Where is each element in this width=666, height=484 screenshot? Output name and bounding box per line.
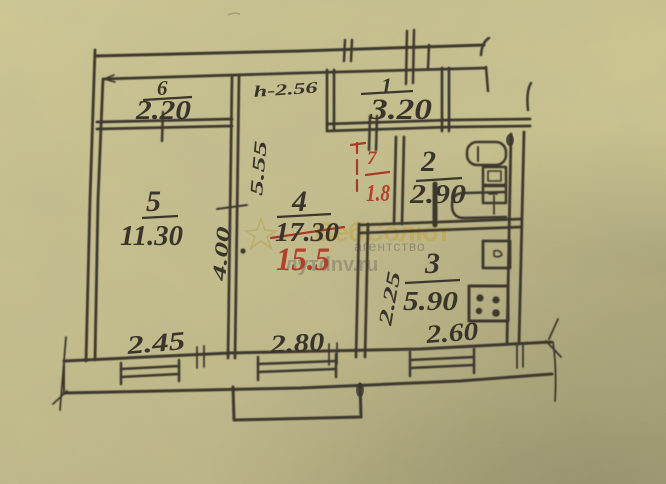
svg-text:2.90: 2.90 [409,179,467,209]
svg-text:15.5: 15.5 [276,242,330,278]
svg-text:2: 2 [420,145,436,178]
svg-text:4: 4 [291,185,307,218]
svg-text:2.45: 2.45 [125,326,187,360]
svg-text:1.8: 1.8 [366,181,390,207]
svg-text:5: 5 [146,185,161,218]
svg-text:5.90: 5.90 [403,286,459,316]
svg-text:7: 7 [367,148,378,169]
svg-text:2.80: 2.80 [269,327,326,359]
svg-text:3.20: 3.20 [369,93,432,126]
svg-text:2.60: 2.60 [424,316,479,349]
svg-text:11.30: 11.30 [120,221,183,252]
svg-text:2.20: 2.20 [135,95,192,125]
svg-text:3: 3 [424,247,440,280]
svg-text:агентство: агентство [354,238,426,254]
